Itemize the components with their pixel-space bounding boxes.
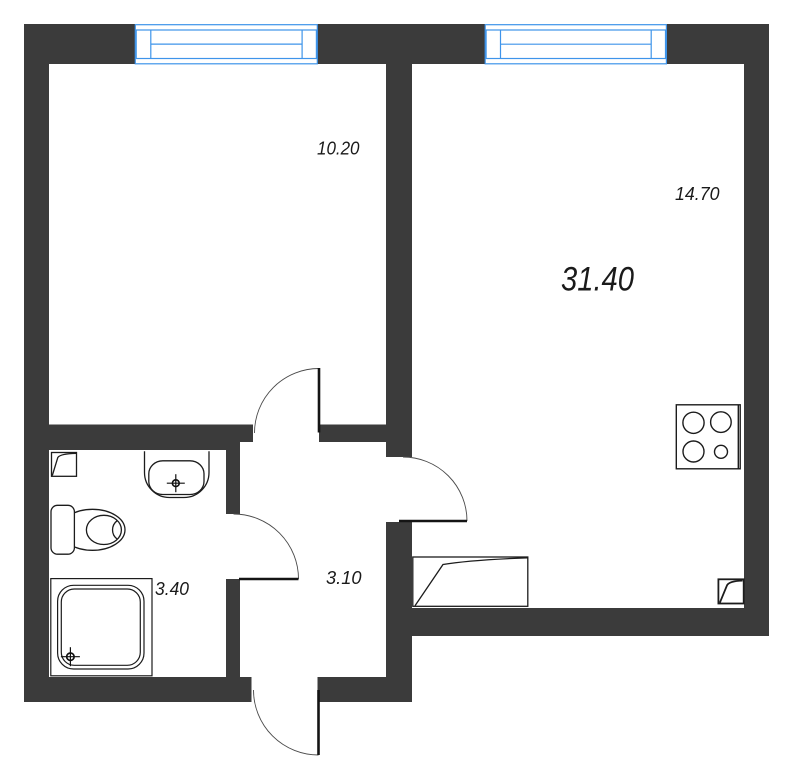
svg-text:3.10: 3.10	[326, 568, 362, 588]
svg-text:14.70: 14.70	[675, 184, 720, 204]
svg-text:31.40: 31.40	[561, 261, 634, 299]
svg-text:10.20: 10.20	[317, 138, 360, 158]
svg-text:3.40: 3.40	[155, 579, 189, 599]
